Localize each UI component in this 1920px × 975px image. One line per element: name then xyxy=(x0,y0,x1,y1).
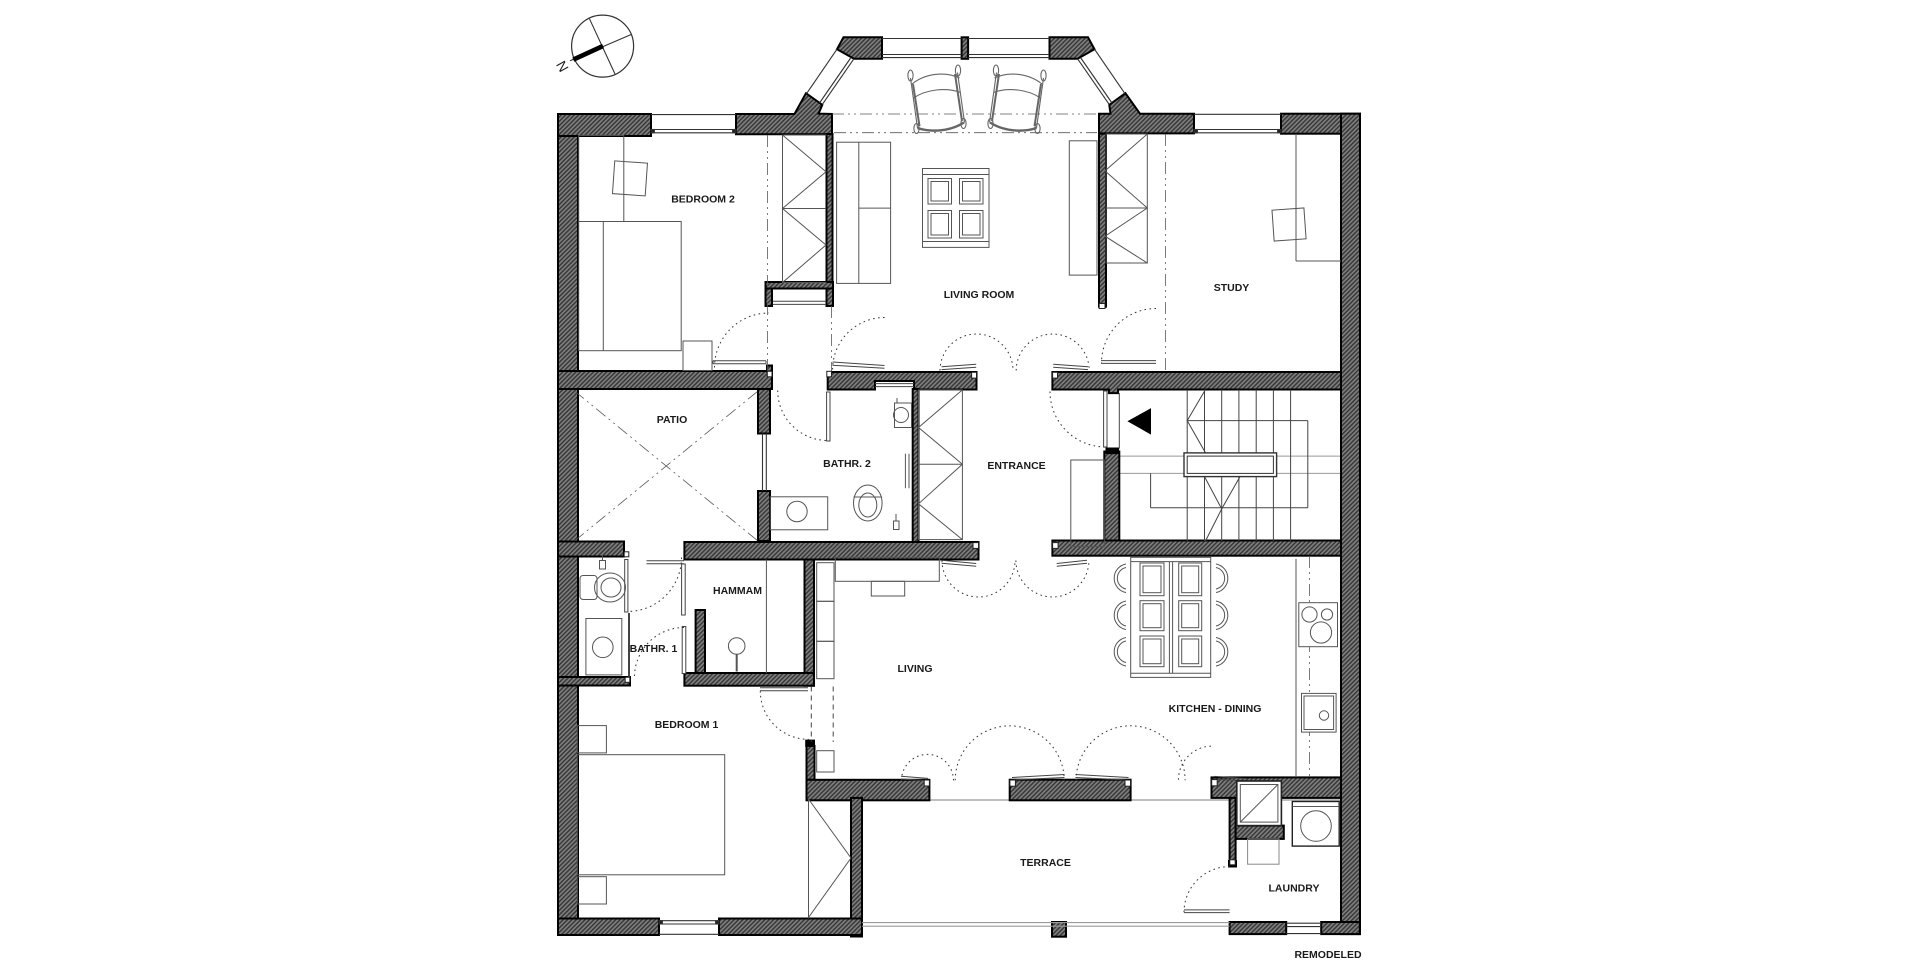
svg-text:BEDROOM 1: BEDROOM 1 xyxy=(655,719,719,731)
svg-text:BEDROOM 2: BEDROOM 2 xyxy=(671,194,735,206)
svg-text:LIVING ROOM: LIVING ROOM xyxy=(944,289,1015,301)
svg-text:STUDY: STUDY xyxy=(1214,282,1250,294)
svg-text:LAUNDRY: LAUNDRY xyxy=(1269,883,1320,895)
svg-text:HAMMAM: HAMMAM xyxy=(713,585,762,597)
svg-text:KITCHEN - DINING: KITCHEN - DINING xyxy=(1169,703,1262,715)
svg-text:PATIO: PATIO xyxy=(657,414,688,426)
svg-text:TERRACE: TERRACE xyxy=(1020,857,1071,869)
svg-text:BATHR. 2: BATHR. 2 xyxy=(823,458,871,470)
svg-text:LIVING: LIVING xyxy=(897,663,932,675)
svg-text:BATHR. 1: BATHR. 1 xyxy=(630,643,678,655)
svg-text:REMODELED: REMODELED xyxy=(1294,949,1362,961)
svg-text:ENTRANCE: ENTRANCE xyxy=(987,460,1045,472)
